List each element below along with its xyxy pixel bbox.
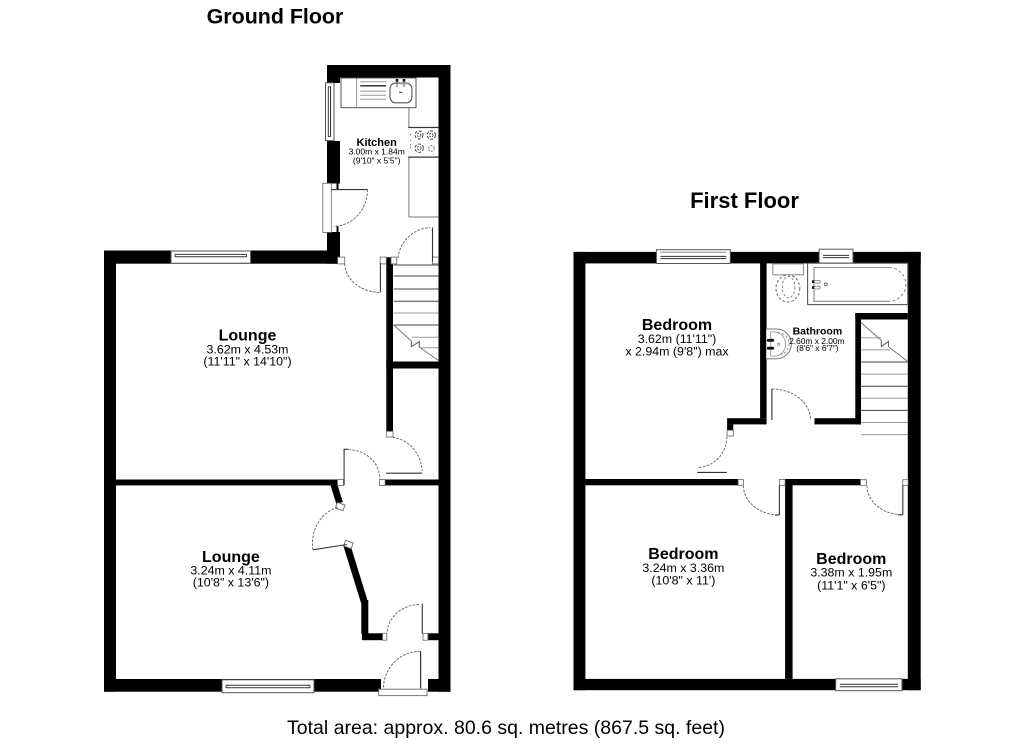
svg-text:x 2.94m (9'8") max: x 2.94m (9'8") max [625,345,729,359]
svg-text:Total area: approx. 80.6 sq. m: Total area: approx. 80.6 sq. metres (867… [287,717,725,739]
svg-text:First Floor: First Floor [690,188,799,213]
svg-text:(10'8" x 13'6"): (10'8" x 13'6") [193,576,269,590]
svg-text:3.38m x 1.95m: 3.38m x 1.95m [810,566,892,580]
svg-text:(11'11" x 14'10"): (11'11" x 14'10") [203,355,291,369]
svg-text:(10'8" x 11'): (10'8" x 11') [651,574,715,588]
svg-text:(9'10" x 5'5"): (9'10" x 5'5") [353,155,401,165]
svg-text:Ground Floor: Ground Floor [207,5,344,29]
svg-text:(11'1" x 6'5"): (11'1" x 6'5") [817,579,885,593]
svg-text:(8'6" x 6'7"): (8'6" x 6'7") [796,343,838,353]
